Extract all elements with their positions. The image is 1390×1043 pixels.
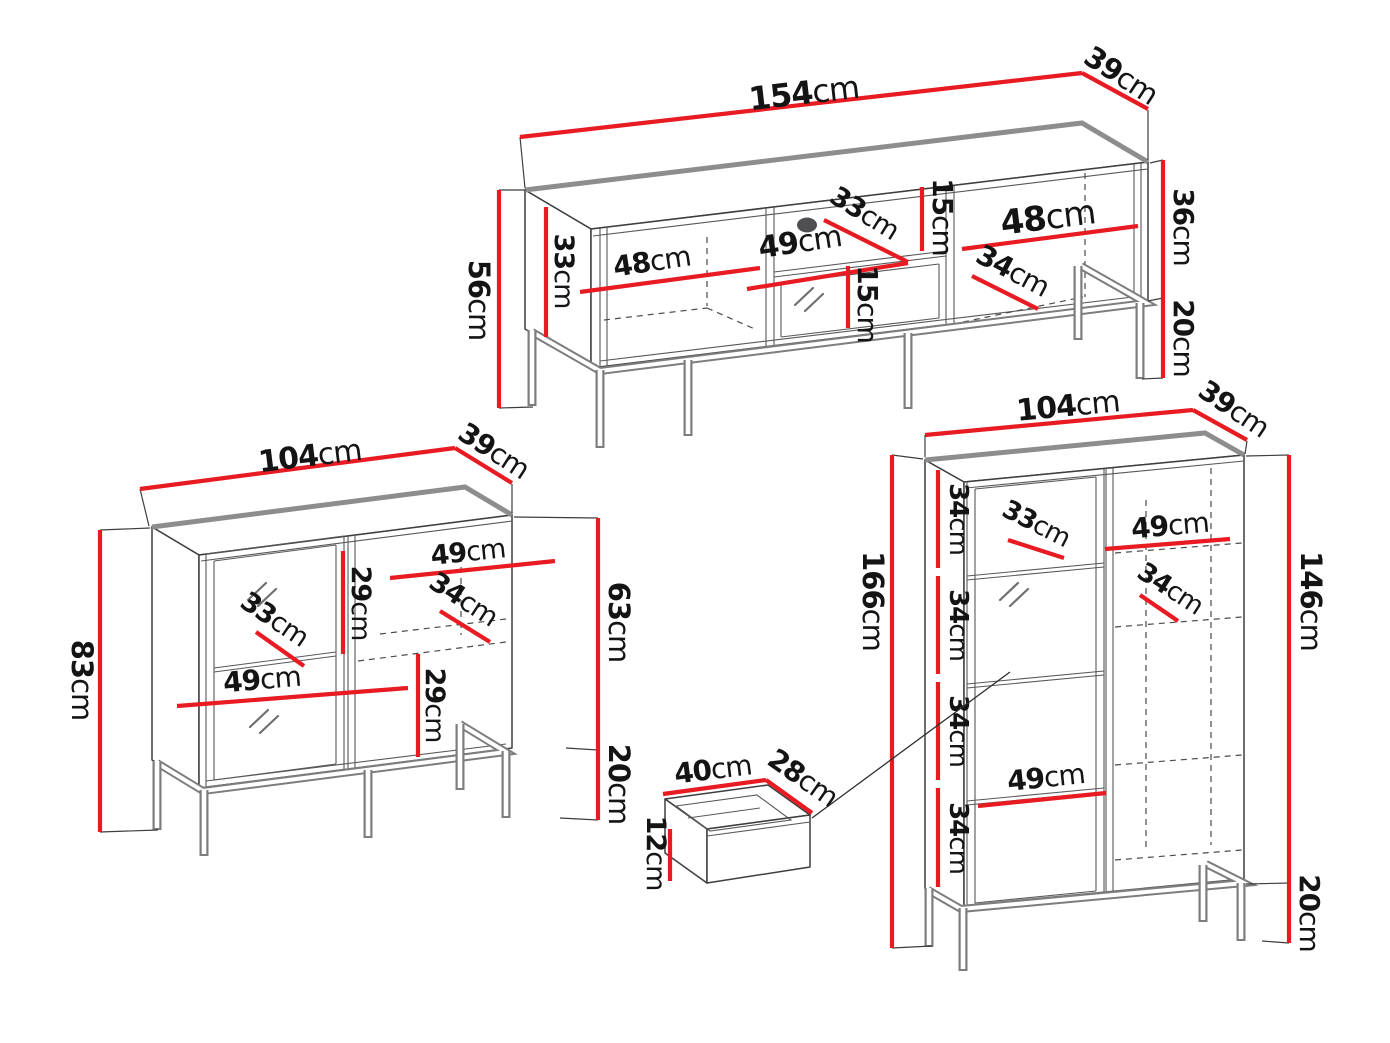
dim-label-tv-bottom-niche-height: 15cm: [851, 265, 884, 343]
dim-label-drawer-height: 12cm: [641, 816, 672, 891]
dim-label-cab-gap-1: 34cm: [944, 483, 974, 555]
dim-label-sb-lower-niche: 29cm: [420, 668, 451, 743]
dim-label-tv-height-total: 56cm: [462, 260, 496, 341]
dim-label-tv-leg-height: 20cm: [1167, 299, 1200, 377]
dim-label-sb-depth: 39cm: [452, 416, 535, 486]
dim-label-cab-gap-4: 34cm: [944, 802, 974, 874]
dim-label-sb-leg-height: 20cm: [602, 744, 636, 825]
dim-label-cab-right-niche: 49cm: [1130, 506, 1210, 546]
dim-label-cab-gap-2: 34cm: [944, 589, 974, 661]
dim-label-tv-width: 154cm: [747, 68, 861, 118]
dim-label-tv-carcass-height: 36cm: [1167, 188, 1200, 266]
sideboard: 104cm 39cm 83cm 29cm 33cm 49cm 34cm 49cm…: [65, 416, 636, 856]
diagram-canvas: 154cm 39cm 56cm 33cm 48cm 49cm 33cm 15cm…: [0, 0, 1390, 1043]
furniture-dimensions-diagram: 154cm 39cm 56cm 33cm 48cm 49cm 33cm 15cm…: [0, 0, 1390, 1043]
dim-label-cab-width: 104cm: [1015, 384, 1121, 429]
dim-label-cab-height-total: 166cm: [856, 551, 890, 651]
dim-label-sb-upper-niche: 29cm: [346, 566, 377, 641]
dim-label-tv-depth: 39cm: [1078, 39, 1164, 111]
sb-left-panel: [152, 527, 199, 788]
dim-label-sb-left-niche: 49cm: [222, 660, 302, 700]
dim-label-tv-top-niche-height: 15cm: [926, 178, 959, 256]
dim-label-tv-inner-side: 33cm: [549, 234, 580, 309]
dim-label-sb-width: 104cm: [256, 432, 363, 479]
dim-label-sb-carcass-height: 63cm: [602, 582, 636, 663]
dim-label-cab-carcass-height: 146cm: [1294, 551, 1328, 651]
dim-label-cab-leg-height: 20cm: [1293, 874, 1326, 952]
dim-label-sb-height-total: 83cm: [65, 640, 99, 721]
display-cabinet: 104cm 39cm 166cm 34cm 34cm 34cm 34cm 33c…: [856, 373, 1328, 971]
dim-label-cab-gap-3: 34cm: [944, 695, 974, 767]
drawer-box: [665, 785, 810, 883]
